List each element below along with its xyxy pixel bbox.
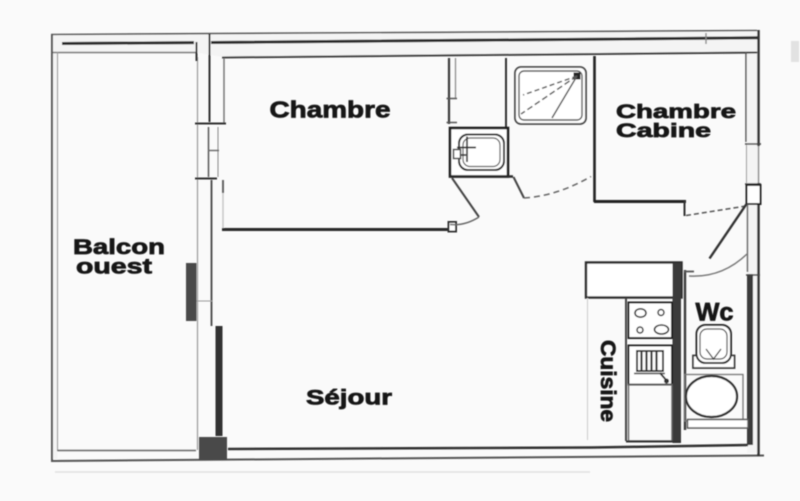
- svg-text:Cuisine: Cuisine: [596, 340, 620, 422]
- svg-text:Wc: Wc: [696, 299, 734, 327]
- svg-text:Cabine: Cabine: [616, 120, 711, 142]
- svg-text:Séjour: Séjour: [306, 386, 393, 410]
- svg-text:ouest: ouest: [76, 255, 152, 279]
- svg-text:Chambre: Chambre: [270, 97, 391, 123]
